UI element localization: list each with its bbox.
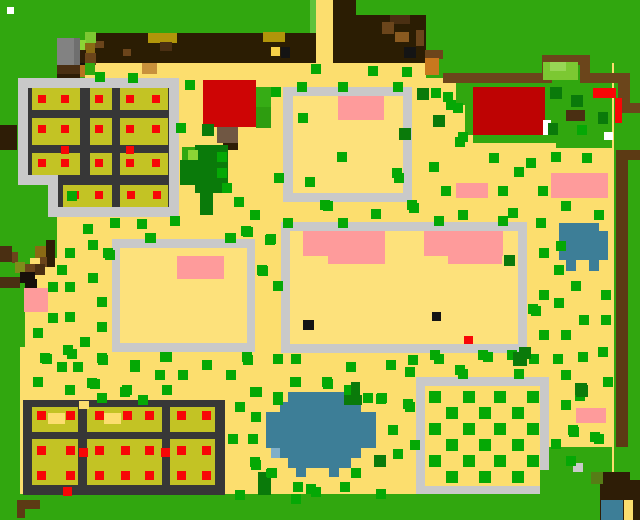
grass-tuft [455, 137, 465, 147]
crop-berry[interactable] [37, 471, 46, 480]
red-bench[interactable] [593, 88, 616, 98]
grass-tuft [265, 235, 275, 245]
crop-berry[interactable] [37, 411, 46, 420]
grass-tuft [291, 354, 301, 364]
hall-bed-right [424, 231, 503, 256]
crop-berry[interactable] [152, 125, 160, 133]
grass-tuft [273, 281, 283, 291]
bush-dot [374, 455, 386, 467]
hall-item-black-2 [432, 312, 441, 321]
pond-row [280, 448, 361, 458]
grass-tuft [162, 352, 172, 362]
corner-green-px [630, 472, 640, 480]
grass-tuft [176, 123, 186, 133]
fence-south [443, 73, 543, 83]
grass-tuft [434, 354, 444, 364]
grass-tuft [351, 468, 361, 478]
house-bush [256, 87, 271, 107]
grass-tuft [410, 440, 420, 450]
grass-tuft [88, 240, 98, 250]
fence-step-right [580, 55, 590, 83]
grass-tuft [33, 377, 43, 387]
grass-left-bulge-3 [0, 286, 25, 347]
bush-dot [576, 385, 588, 397]
grass-tuft [80, 337, 90, 347]
crop-berry[interactable] [95, 125, 103, 133]
grass-tuft [311, 64, 321, 74]
house-porch [217, 127, 238, 143]
grass-tuft [403, 399, 413, 409]
crop-berry[interactable] [95, 411, 104, 420]
path-stub-sw-v [17, 500, 25, 518]
band-ochre-2 [263, 32, 285, 42]
tree-highlight [188, 150, 198, 160]
grass-tuft [402, 67, 412, 77]
grass-tuft [271, 87, 281, 97]
grass-tuft [554, 298, 564, 308]
grass-tuft [65, 248, 75, 258]
house-bush-2 [256, 107, 271, 128]
grass-tuft [393, 82, 403, 92]
crop-berry[interactable] [177, 411, 186, 420]
pond-bush-dark-h [344, 395, 362, 405]
grass-tuft [65, 385, 75, 395]
grass-notch [18, 185, 48, 217]
fallen-log-1 [0, 246, 12, 262]
grass-tuft [568, 425, 578, 435]
pen-bush-paler [550, 62, 566, 71]
grass-tuft [202, 360, 212, 370]
orchard-sapling[interactable] [494, 391, 506, 403]
grass-tuft [429, 162, 439, 172]
grass-tuft [579, 315, 589, 325]
grass-tuft [155, 370, 165, 380]
grass-tuft [290, 377, 300, 387]
orchard-sapling[interactable] [463, 391, 475, 403]
blue-animal-head [559, 223, 599, 231]
bush-dot [202, 124, 214, 136]
dirt-strip-east [616, 160, 628, 447]
grass-tuft [561, 400, 571, 410]
crop-berry[interactable] [126, 159, 134, 167]
grass-tuft [489, 153, 499, 163]
grass-bottom-strip [0, 494, 640, 520]
hall-bed-right-2 [448, 256, 502, 264]
grass-tuft [273, 354, 283, 364]
crop-berry[interactable] [145, 446, 154, 455]
orchard-sapling[interactable] [429, 455, 441, 467]
log-pile-4 [416, 30, 424, 46]
grass-tuft [170, 216, 180, 226]
grass-tuft [185, 80, 195, 90]
crop-gap-sand-2 [104, 413, 121, 424]
statue-base [57, 65, 80, 74]
hall-bed-left [303, 231, 385, 256]
bush-dot [417, 88, 429, 100]
crop-berry[interactable] [177, 471, 186, 480]
pen-bush-4 [548, 123, 558, 135]
grass-tuft [225, 233, 235, 243]
orchard-sapling[interactable] [463, 423, 475, 435]
pen-bush-bright [577, 125, 587, 135]
crop-berry[interactable] [66, 471, 75, 480]
orchard-sapling[interactable] [479, 471, 491, 483]
grass-tuft [137, 219, 147, 229]
hall-item-black-1 [303, 320, 314, 330]
crop-berry[interactable] [152, 159, 160, 167]
grass-tuft [273, 392, 283, 402]
corner-sand [624, 500, 633, 520]
grass-cut-se-2 [540, 470, 549, 495]
crop-field-nw-border-step [18, 175, 58, 185]
pen-bush-3 [598, 112, 608, 124]
pen-bush-2 [571, 95, 583, 107]
crop-berry[interactable] [145, 471, 154, 480]
grass-tuft [453, 103, 463, 113]
corner-water [601, 500, 623, 520]
bush-dot [519, 347, 531, 359]
grass-tuft [298, 113, 308, 123]
orchard-sapling[interactable] [446, 471, 458, 483]
crop-berry[interactable] [61, 125, 69, 133]
fallen-log-8 [35, 264, 45, 275]
grass-tuft [217, 168, 227, 178]
fence-south-2 [590, 73, 620, 83]
crop-berry[interactable] [121, 471, 130, 480]
crop-berry[interactable] [61, 146, 69, 154]
grass-tuft [67, 349, 77, 359]
grass-tuft [601, 290, 611, 300]
orchard-sapling[interactable] [512, 439, 524, 451]
grass-tuft [371, 209, 381, 219]
grass-tuft [554, 265, 564, 275]
fallen-log-11 [25, 279, 37, 288]
blue-animal[interactable] [559, 231, 608, 260]
grass-tuft [514, 369, 524, 379]
crop-berry[interactable] [61, 95, 69, 103]
grass-tuft [346, 362, 356, 372]
grass-tuft [42, 354, 52, 364]
dirt-patch-left [0, 125, 17, 150]
crop-berry[interactable] [38, 125, 46, 133]
crop-berry[interactable] [95, 471, 104, 480]
crop-berry[interactable] [145, 411, 154, 420]
hall-bed-left-2 [328, 256, 385, 264]
grass-tuft [539, 330, 549, 340]
crop-berry[interactable] [37, 446, 46, 455]
hall-item-red [464, 336, 473, 344]
inn-bed [338, 96, 384, 120]
crop-berry[interactable] [126, 125, 134, 133]
grass-tuft [293, 482, 303, 492]
grass-tuft [274, 173, 284, 183]
grass-tuft [90, 379, 100, 389]
grass-tuft [394, 173, 404, 183]
grass-tuft [243, 227, 253, 237]
grass-tuft [242, 352, 252, 362]
grass-tuft [267, 468, 277, 478]
grass-tuft [434, 216, 444, 226]
blue-animal-leg [566, 260, 576, 271]
grass-tuft [65, 312, 75, 322]
log-pile-2 [382, 22, 394, 34]
grass-tuft [252, 387, 262, 397]
pond[interactable] [266, 412, 376, 448]
grass-tuft [234, 197, 244, 207]
pink-rug-2 [551, 173, 608, 198]
grass-tuft [368, 66, 378, 76]
grass-tuft [251, 412, 261, 422]
grass-pen-4 [473, 135, 561, 143]
orchard-sapling[interactable] [512, 407, 524, 419]
grass-tuft [122, 385, 132, 395]
band-brown-2 [123, 49, 131, 56]
grass-tuft [539, 290, 549, 300]
grass-tuft [297, 82, 307, 92]
grass-tuft [536, 218, 546, 228]
grass-tuft [337, 152, 347, 162]
orchard-sapling[interactable] [463, 455, 475, 467]
grass-tuft [57, 362, 67, 372]
grass-tuft [65, 282, 75, 292]
crop-berry[interactable] [61, 159, 69, 167]
grass-tuft [48, 313, 58, 323]
crop-berry[interactable] [152, 95, 160, 103]
grass-tuft [551, 152, 561, 162]
blue-animal-leg [589, 260, 599, 271]
grass-tuft [323, 201, 333, 211]
pen-dirt-spot [566, 110, 585, 121]
grass-tuft [130, 362, 140, 372]
grass-tuft [377, 393, 387, 403]
tan-block [142, 63, 157, 74]
band-brown-1 [95, 41, 104, 48]
crop-berry[interactable] [202, 411, 211, 420]
olive-dot [591, 472, 603, 484]
grass-tuft [601, 315, 611, 325]
crop-berry[interactable] [95, 446, 104, 455]
grass-tuft [57, 265, 67, 275]
pink-rug-3 [576, 408, 606, 423]
grass-tuft [178, 370, 188, 380]
grass-tuft [561, 330, 571, 340]
statue-shade [74, 38, 80, 65]
crop-berry[interactable] [66, 411, 75, 420]
grass-tuft [538, 186, 548, 196]
grass-tuft [48, 282, 58, 292]
grass-tuft [248, 434, 258, 444]
grass-tuft [539, 248, 549, 258]
fence-orange-post [425, 58, 439, 75]
crop-berry[interactable] [121, 446, 130, 455]
grass-tuft [582, 153, 592, 163]
grass-tuft [162, 385, 172, 395]
bush-dot [433, 115, 445, 127]
grass-tuft [571, 281, 581, 291]
pond-row [288, 392, 351, 402]
crop-berry[interactable] [95, 159, 103, 167]
orchard-sapling[interactable] [429, 391, 441, 403]
orchard-sapling[interactable] [494, 455, 506, 467]
log-pile-5 [404, 47, 416, 58]
crop-berry[interactable] [177, 446, 186, 455]
band-gold-pixel [271, 47, 280, 56]
grass-tuft [311, 487, 321, 497]
crop-berry[interactable] [202, 471, 211, 480]
grass-tuft [88, 273, 98, 283]
band-end-grass-px [85, 63, 95, 75]
pink-rug-1 [456, 183, 488, 198]
grass-tuft [283, 218, 293, 228]
tree-line-band-right [333, 0, 356, 63]
grass-tuft [338, 218, 348, 228]
orchard-sapling[interactable] [527, 391, 539, 403]
grass-tuft [603, 377, 613, 387]
west-bed [177, 256, 224, 279]
grass-tuft [551, 439, 561, 449]
grass-tuft [110, 218, 120, 228]
grass-tuft [291, 494, 301, 504]
grass-tuft [498, 186, 508, 196]
tree-lower [200, 193, 213, 215]
orchard-sapling[interactable] [446, 407, 458, 419]
grass-tuft [222, 183, 232, 193]
grass-tuft [566, 456, 576, 466]
grass-tuft [33, 328, 43, 338]
orchard-sapling[interactable] [494, 423, 506, 435]
grass-tuft [409, 203, 419, 213]
grass-tuft [508, 208, 518, 218]
hall-dark-dot [504, 255, 515, 266]
band-end-green-1 [85, 32, 96, 43]
grass-tuft [553, 354, 563, 364]
crop-berry[interactable] [161, 448, 170, 457]
barn[interactable] [473, 87, 545, 135]
grass-tuft [138, 395, 148, 405]
orchard-sapling[interactable] [429, 423, 441, 435]
crop-berry[interactable] [126, 95, 134, 103]
grass-tuft [578, 352, 588, 362]
crop-berry[interactable] [79, 448, 88, 457]
crop-berry[interactable] [95, 191, 103, 199]
egg [604, 132, 613, 140]
path-edge-light [310, 0, 316, 33]
grass-tuft [97, 393, 107, 403]
grass-tuft [103, 248, 113, 258]
grass-tuft [431, 88, 441, 98]
grass-tuft [250, 210, 260, 220]
pond-row [288, 458, 351, 468]
orchard-sapling[interactable] [512, 471, 524, 483]
orchard-sapling[interactable] [527, 423, 539, 435]
orchard-sapling[interactable] [479, 407, 491, 419]
grass-tuft [235, 490, 245, 500]
grass-tuft [83, 224, 93, 234]
tree-canopy-left [180, 160, 195, 185]
grass-tuft [598, 347, 608, 357]
sand-path-north [316, 0, 333, 66]
pen-bush-1 [550, 87, 562, 99]
grass-tuft [458, 210, 468, 220]
grass-tuft [97, 322, 107, 332]
pond-nub [329, 468, 339, 477]
grass-tuft [498, 216, 508, 226]
grass-tuft [441, 186, 451, 196]
grass-tuft [338, 82, 348, 92]
grass-tuft [393, 449, 403, 459]
grass-tuft [67, 191, 77, 201]
crop-berry[interactable] [126, 146, 134, 154]
crop-berry[interactable] [63, 487, 72, 496]
crop-berry[interactable] [38, 159, 46, 167]
crop-berry[interactable] [66, 446, 75, 455]
fallen-log-4 [46, 240, 55, 267]
red-house[interactable] [203, 80, 256, 127]
pink-rug-4 [24, 288, 48, 312]
grass-tuft [98, 355, 108, 365]
crop-gap-entrance [79, 401, 89, 409]
grass-tuft [405, 367, 415, 377]
grass-tuft [226, 370, 236, 380]
grass-tuft [561, 370, 571, 380]
grass-tuft [363, 393, 373, 403]
grass-tuft [73, 362, 83, 372]
grass-tuft [257, 265, 267, 275]
band-brown-3 [160, 42, 172, 51]
orchard-sapling[interactable] [446, 439, 458, 451]
band-black-pixel [281, 47, 290, 58]
band-end-brown-1 [85, 43, 95, 53]
bush-dot [399, 128, 411, 140]
fallen-log-10 [0, 277, 20, 288]
crop-berry[interactable] [202, 446, 211, 455]
grass-tuft [388, 425, 398, 435]
crop-berry[interactable] [123, 411, 132, 420]
grass-tuft [95, 72, 105, 82]
game-map [0, 0, 640, 520]
grass-tuft [561, 201, 571, 211]
grass-tuft [483, 352, 493, 362]
grass-tuft [97, 297, 107, 307]
grass-tuft [217, 152, 227, 162]
grass-tuft [408, 355, 418, 365]
white-corner-pixel [7, 7, 14, 14]
crop-field-nw-border-v [48, 185, 58, 217]
grass-tuft [145, 233, 155, 243]
orchard-sapling[interactable] [479, 439, 491, 451]
grass-tuft [228, 434, 238, 444]
orchard-sapling[interactable] [527, 455, 539, 467]
grass-tuft [340, 482, 350, 492]
red-bench-leg [615, 98, 622, 123]
grass-tuft [526, 158, 536, 168]
grass-tuft [556, 241, 566, 251]
log-pile-3 [395, 32, 409, 42]
crop-berry[interactable] [95, 95, 103, 103]
grass-tuft [528, 304, 538, 314]
crop-berry[interactable] [153, 191, 161, 199]
grass-tuft [251, 460, 261, 470]
grass-tuft [305, 177, 315, 187]
pond-nub [296, 468, 306, 477]
crop-berry[interactable] [127, 191, 135, 199]
grass-tuft [386, 360, 396, 370]
crop-berry[interactable] [38, 95, 46, 103]
grass-tuft [594, 210, 604, 220]
grass-tuft [322, 377, 332, 387]
grass-tuft [128, 73, 138, 83]
grass-tuft [455, 365, 465, 375]
